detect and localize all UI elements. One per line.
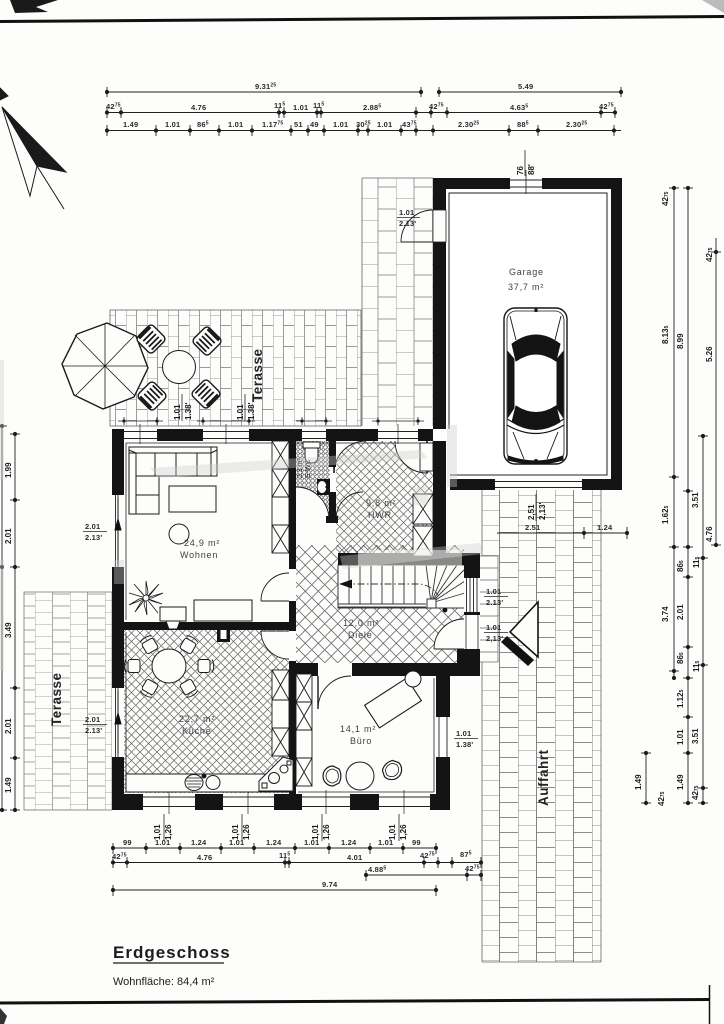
svg-text:3.49: 3.49	[4, 622, 13, 638]
svg-text:1.01: 1.01	[173, 404, 182, 420]
svg-text:1.24: 1.24	[266, 838, 282, 847]
svg-text:24,9 m²: 24,9 m²	[184, 538, 220, 548]
svg-text:Wohnen: Wohnen	[180, 550, 218, 560]
svg-text:3.51: 3.51	[691, 728, 700, 744]
svg-text:2,13': 2,13'	[538, 502, 547, 520]
svg-text:1.38': 1.38'	[247, 402, 256, 420]
svg-text:2.13': 2.13'	[85, 726, 102, 735]
svg-text:1.38': 1.38'	[456, 740, 473, 749]
svg-text:2.13': 2.13'	[85, 533, 102, 542]
svg-text:1.01: 1.01	[229, 838, 244, 847]
svg-text:2.51: 2.51	[525, 523, 540, 532]
svg-text:2.01: 2.01	[676, 604, 685, 620]
svg-text:5.49: 5.49	[518, 82, 533, 91]
svg-text:9,8 m²: 9,8 m²	[366, 498, 396, 508]
svg-text:1.01: 1.01	[378, 838, 393, 847]
svg-text:1,26: 1,26	[322, 824, 331, 840]
svg-text:14,1 m²: 14,1 m²	[340, 724, 376, 734]
svg-text:4.76: 4.76	[191, 103, 206, 112]
svg-text:8.99: 8.99	[676, 333, 685, 349]
svg-text:2,13': 2,13'	[486, 634, 503, 643]
svg-text:Küche: Küche	[182, 726, 212, 736]
svg-text:1.01: 1.01	[377, 120, 392, 129]
svg-text:2,51: 2,51	[527, 504, 536, 520]
svg-text:1.01: 1.01	[293, 103, 308, 112]
svg-text:22,7 m²: 22,7 m²	[179, 714, 215, 724]
svg-text:5.26: 5.26	[705, 346, 714, 362]
svg-text:Auffahrt: Auffahrt	[536, 750, 551, 807]
svg-text:12,0 m²: 12,0 m²	[343, 618, 379, 628]
svg-text:Erdgeschoss: Erdgeschoss	[113, 943, 231, 962]
svg-text:2.01: 2.01	[85, 522, 100, 531]
svg-text:1.24: 1.24	[191, 838, 207, 847]
svg-text:37,7 m²: 37,7 m²	[508, 282, 544, 292]
svg-text:2.01: 2.01	[85, 715, 100, 724]
svg-text:2.13': 2.13'	[399, 219, 416, 228]
svg-text:3.51: 3.51	[691, 492, 700, 508]
svg-text:1,26: 1,26	[399, 824, 408, 840]
svg-text:1.01: 1.01	[228, 120, 243, 129]
svg-text:4.76: 4.76	[705, 526, 714, 542]
svg-text:1.01: 1.01	[304, 838, 319, 847]
svg-text:1.01: 1.01	[236, 404, 245, 420]
svg-text:88': 88'	[527, 164, 536, 175]
svg-text:99: 99	[412, 838, 421, 847]
svg-text:1.99: 1.99	[4, 462, 13, 478]
svg-text:3.74: 3.74	[661, 606, 670, 622]
svg-text:51: 51	[294, 120, 303, 129]
svg-text:1.49: 1.49	[4, 777, 13, 793]
svg-text:Terasse: Terasse	[250, 348, 265, 402]
svg-text:Wohnfläche: 84,4 m²: Wohnfläche: 84,4 m²	[113, 976, 215, 988]
svg-text:Terasse: Terasse	[49, 672, 64, 726]
svg-text:2.01: 2.01	[4, 528, 13, 544]
svg-text:1.01: 1.01	[486, 587, 501, 596]
svg-text:1.01: 1.01	[155, 838, 170, 847]
svg-text:Diele: Diele	[348, 630, 373, 640]
svg-text:49: 49	[310, 120, 319, 129]
svg-text:1.01: 1.01	[676, 729, 685, 745]
svg-text:HWR: HWR	[368, 510, 392, 520]
svg-text:1.49: 1.49	[123, 120, 138, 129]
svg-text:Garage: Garage	[509, 267, 544, 277]
svg-text:1.49: 1.49	[676, 774, 685, 790]
svg-text:1.49: 1.49	[634, 774, 643, 790]
svg-text:1.01: 1.01	[399, 208, 414, 217]
svg-text:2.13': 2.13'	[486, 598, 503, 607]
svg-text:4.01: 4.01	[347, 853, 362, 862]
svg-text:1.01: 1.01	[456, 729, 471, 738]
svg-text:76: 76	[516, 166, 525, 175]
svg-text:9.74: 9.74	[322, 880, 338, 889]
svg-text:4.76: 4.76	[197, 853, 212, 862]
svg-text:99: 99	[123, 838, 132, 847]
svg-text:1.01: 1.01	[333, 120, 348, 129]
svg-text:1.24: 1.24	[341, 838, 357, 847]
svg-text:1.38': 1.38'	[184, 402, 193, 420]
svg-text:1.24: 1.24	[597, 523, 613, 532]
svg-text:1.01: 1.01	[165, 120, 180, 129]
svg-text:2.01: 2.01	[4, 718, 13, 734]
svg-text:Büro: Büro	[350, 736, 372, 746]
svg-text:1.01: 1.01	[486, 623, 501, 632]
